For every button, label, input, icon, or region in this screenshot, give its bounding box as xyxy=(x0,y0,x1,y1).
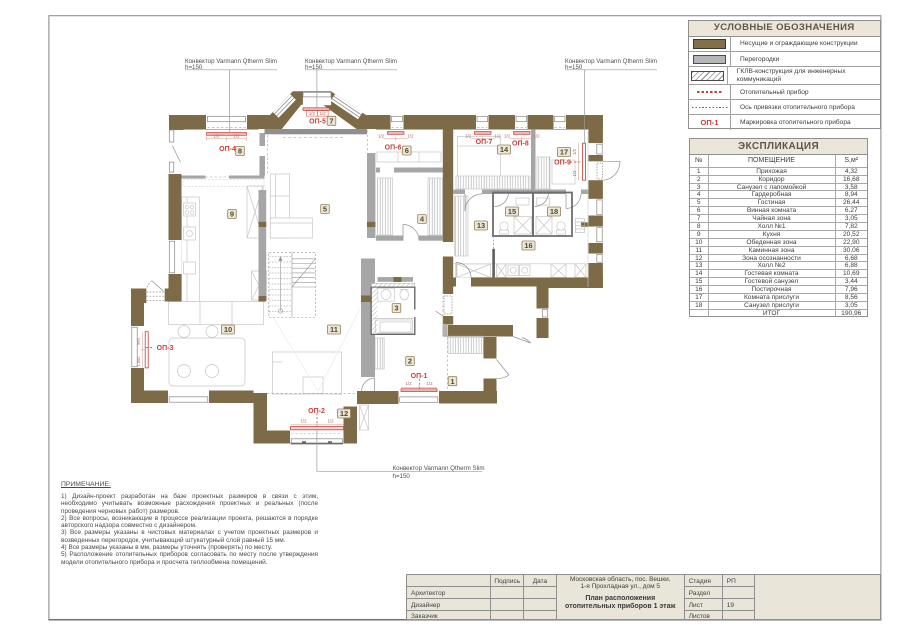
svg-text:ОП-6: ОП-6 xyxy=(385,145,402,152)
svg-text:1/2: 1/2 xyxy=(494,134,501,139)
svg-text:1/2: 1/2 xyxy=(465,134,472,139)
svg-text:1/2: 1/2 xyxy=(213,134,220,139)
svg-text:11: 11 xyxy=(330,325,338,334)
svg-text:1/2: 1/2 xyxy=(320,111,327,116)
svg-text:ОП-4: ОП-4 xyxy=(219,146,236,153)
svg-text:h=150: h=150 xyxy=(565,64,583,71)
svg-text:Конвектор Varmann Qtherm Slim: Конвектор Varmann Qtherm Slim xyxy=(393,465,485,472)
svg-text:960: 960 xyxy=(136,337,141,344)
svg-text:h=150: h=150 xyxy=(305,64,323,71)
svg-text:ОП-9: ОП-9 xyxy=(554,160,571,167)
svg-text:18: 18 xyxy=(550,207,558,216)
svg-text:ОП-2: ОП-2 xyxy=(308,408,325,415)
svg-text:1/2: 1/2 xyxy=(504,134,511,139)
svg-text:9: 9 xyxy=(230,210,234,219)
svg-text:1/2: 1/2 xyxy=(233,134,240,139)
svg-text:ОП-5: ОП-5 xyxy=(309,118,326,125)
svg-text:1: 1 xyxy=(450,377,454,386)
svg-text:h=150: h=150 xyxy=(185,64,203,71)
svg-text:16: 16 xyxy=(524,241,532,250)
svg-text:14: 14 xyxy=(500,145,509,154)
svg-text:1/2: 1/2 xyxy=(327,418,334,423)
svg-text:ОП-8: ОП-8 xyxy=(512,141,529,148)
svg-text:1/2: 1/2 xyxy=(572,170,577,177)
svg-text:12: 12 xyxy=(340,409,348,418)
svg-text:1/2: 1/2 xyxy=(300,418,307,423)
svg-text:ОП-7: ОП-7 xyxy=(476,139,493,146)
svg-text:1/2: 1/2 xyxy=(405,381,412,386)
svg-text:1/2: 1/2 xyxy=(572,148,577,155)
svg-text:10: 10 xyxy=(224,325,232,334)
svg-text:1.000: 1.000 xyxy=(136,356,141,367)
svg-text:17: 17 xyxy=(560,148,568,157)
svg-text:ОП-3: ОП-3 xyxy=(157,345,174,352)
svg-text:15: 15 xyxy=(508,207,516,216)
svg-text:1/2: 1/2 xyxy=(533,134,540,139)
svg-text:7: 7 xyxy=(329,117,333,126)
svg-text:13: 13 xyxy=(477,221,485,230)
svg-text:6: 6 xyxy=(405,146,409,155)
svg-text:8: 8 xyxy=(238,147,242,156)
svg-text:5: 5 xyxy=(323,205,327,214)
svg-text:1/2: 1/2 xyxy=(407,134,414,139)
svg-text:3: 3 xyxy=(394,304,398,313)
svg-text:1/2: 1/2 xyxy=(309,111,316,116)
svg-text:1/2: 1/2 xyxy=(378,134,385,139)
svg-text:2: 2 xyxy=(408,357,412,366)
svg-text:1/2: 1/2 xyxy=(426,381,433,386)
svg-text:ОП-1: ОП-1 xyxy=(411,373,428,380)
svg-text:h=150: h=150 xyxy=(393,473,411,480)
